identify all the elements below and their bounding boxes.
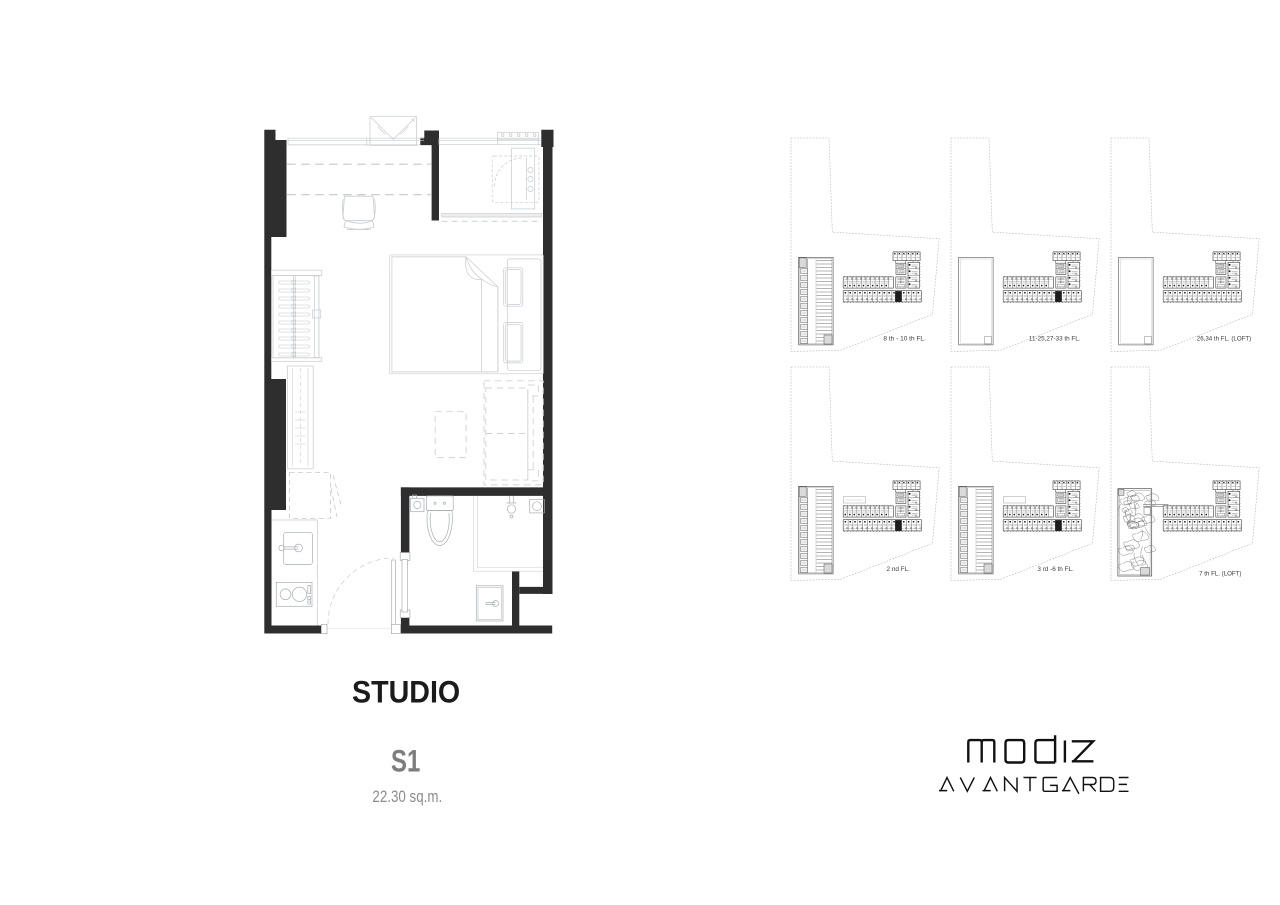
svg-text:S1: S1 [391, 742, 420, 778]
svg-text:3 rd -6 th FL.: 3 rd -6 th FL. [1037, 566, 1074, 573]
svg-text:11-25,27-33 th FL.: 11-25,27-33 th FL. [1029, 336, 1081, 343]
svg-text:STUDIO: STUDIO [352, 674, 460, 710]
svg-text:7 th FL. (LOFT): 7 th FL. (LOFT) [1199, 571, 1241, 578]
svg-text:8 th - 10 th FL.: 8 th - 10 th FL. [883, 336, 926, 343]
svg-text:26,34 th FL. (LOFT): 26,34 th FL. (LOFT) [1197, 336, 1251, 343]
svg-text:2 nd FL.: 2 nd FL. [887, 566, 911, 573]
svg-text:22.30 sq.m.: 22.30 sq.m. [372, 788, 442, 806]
